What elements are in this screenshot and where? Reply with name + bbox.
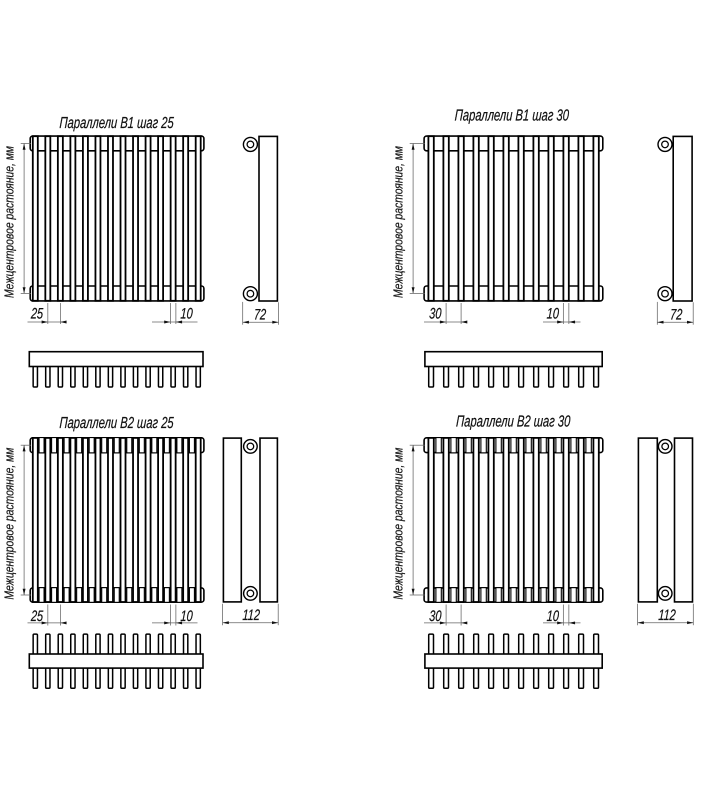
svg-text:112: 112 <box>242 606 261 623</box>
svg-text:Межцентровое растояние, мм: Межцентровое растояние, мм <box>2 146 16 298</box>
svg-text:72: 72 <box>670 306 684 323</box>
svg-text:Параллели В2 шаг 30: Параллели В2 шаг 30 <box>456 411 571 430</box>
svg-text:Параллели В2 шаг 25: Параллели В2 шаг 25 <box>59 413 174 432</box>
svg-text:10: 10 <box>546 305 560 322</box>
svg-text:Межцентровое растояние, мм: Межцентровое растояние, мм <box>391 146 405 298</box>
svg-text:30: 30 <box>429 607 443 624</box>
svg-text:10: 10 <box>180 607 194 624</box>
svg-text:112: 112 <box>658 606 677 623</box>
svg-text:Межцентровое растояние, мм: Межцентровое растояние, мм <box>391 447 405 599</box>
svg-text:10: 10 <box>180 305 194 322</box>
svg-text:10: 10 <box>546 607 560 624</box>
svg-text:25: 25 <box>30 305 44 322</box>
svg-text:Параллели В1 шаг 30: Параллели В1 шаг 30 <box>454 105 569 124</box>
svg-text:Межцентровое растояние, мм: Межцентровое растояние, мм <box>2 447 16 599</box>
svg-text:30: 30 <box>429 305 443 322</box>
svg-text:72: 72 <box>254 306 268 323</box>
svg-text:25: 25 <box>30 607 44 624</box>
svg-text:Параллели В1 шаг 25: Параллели В1 шаг 25 <box>59 113 174 132</box>
